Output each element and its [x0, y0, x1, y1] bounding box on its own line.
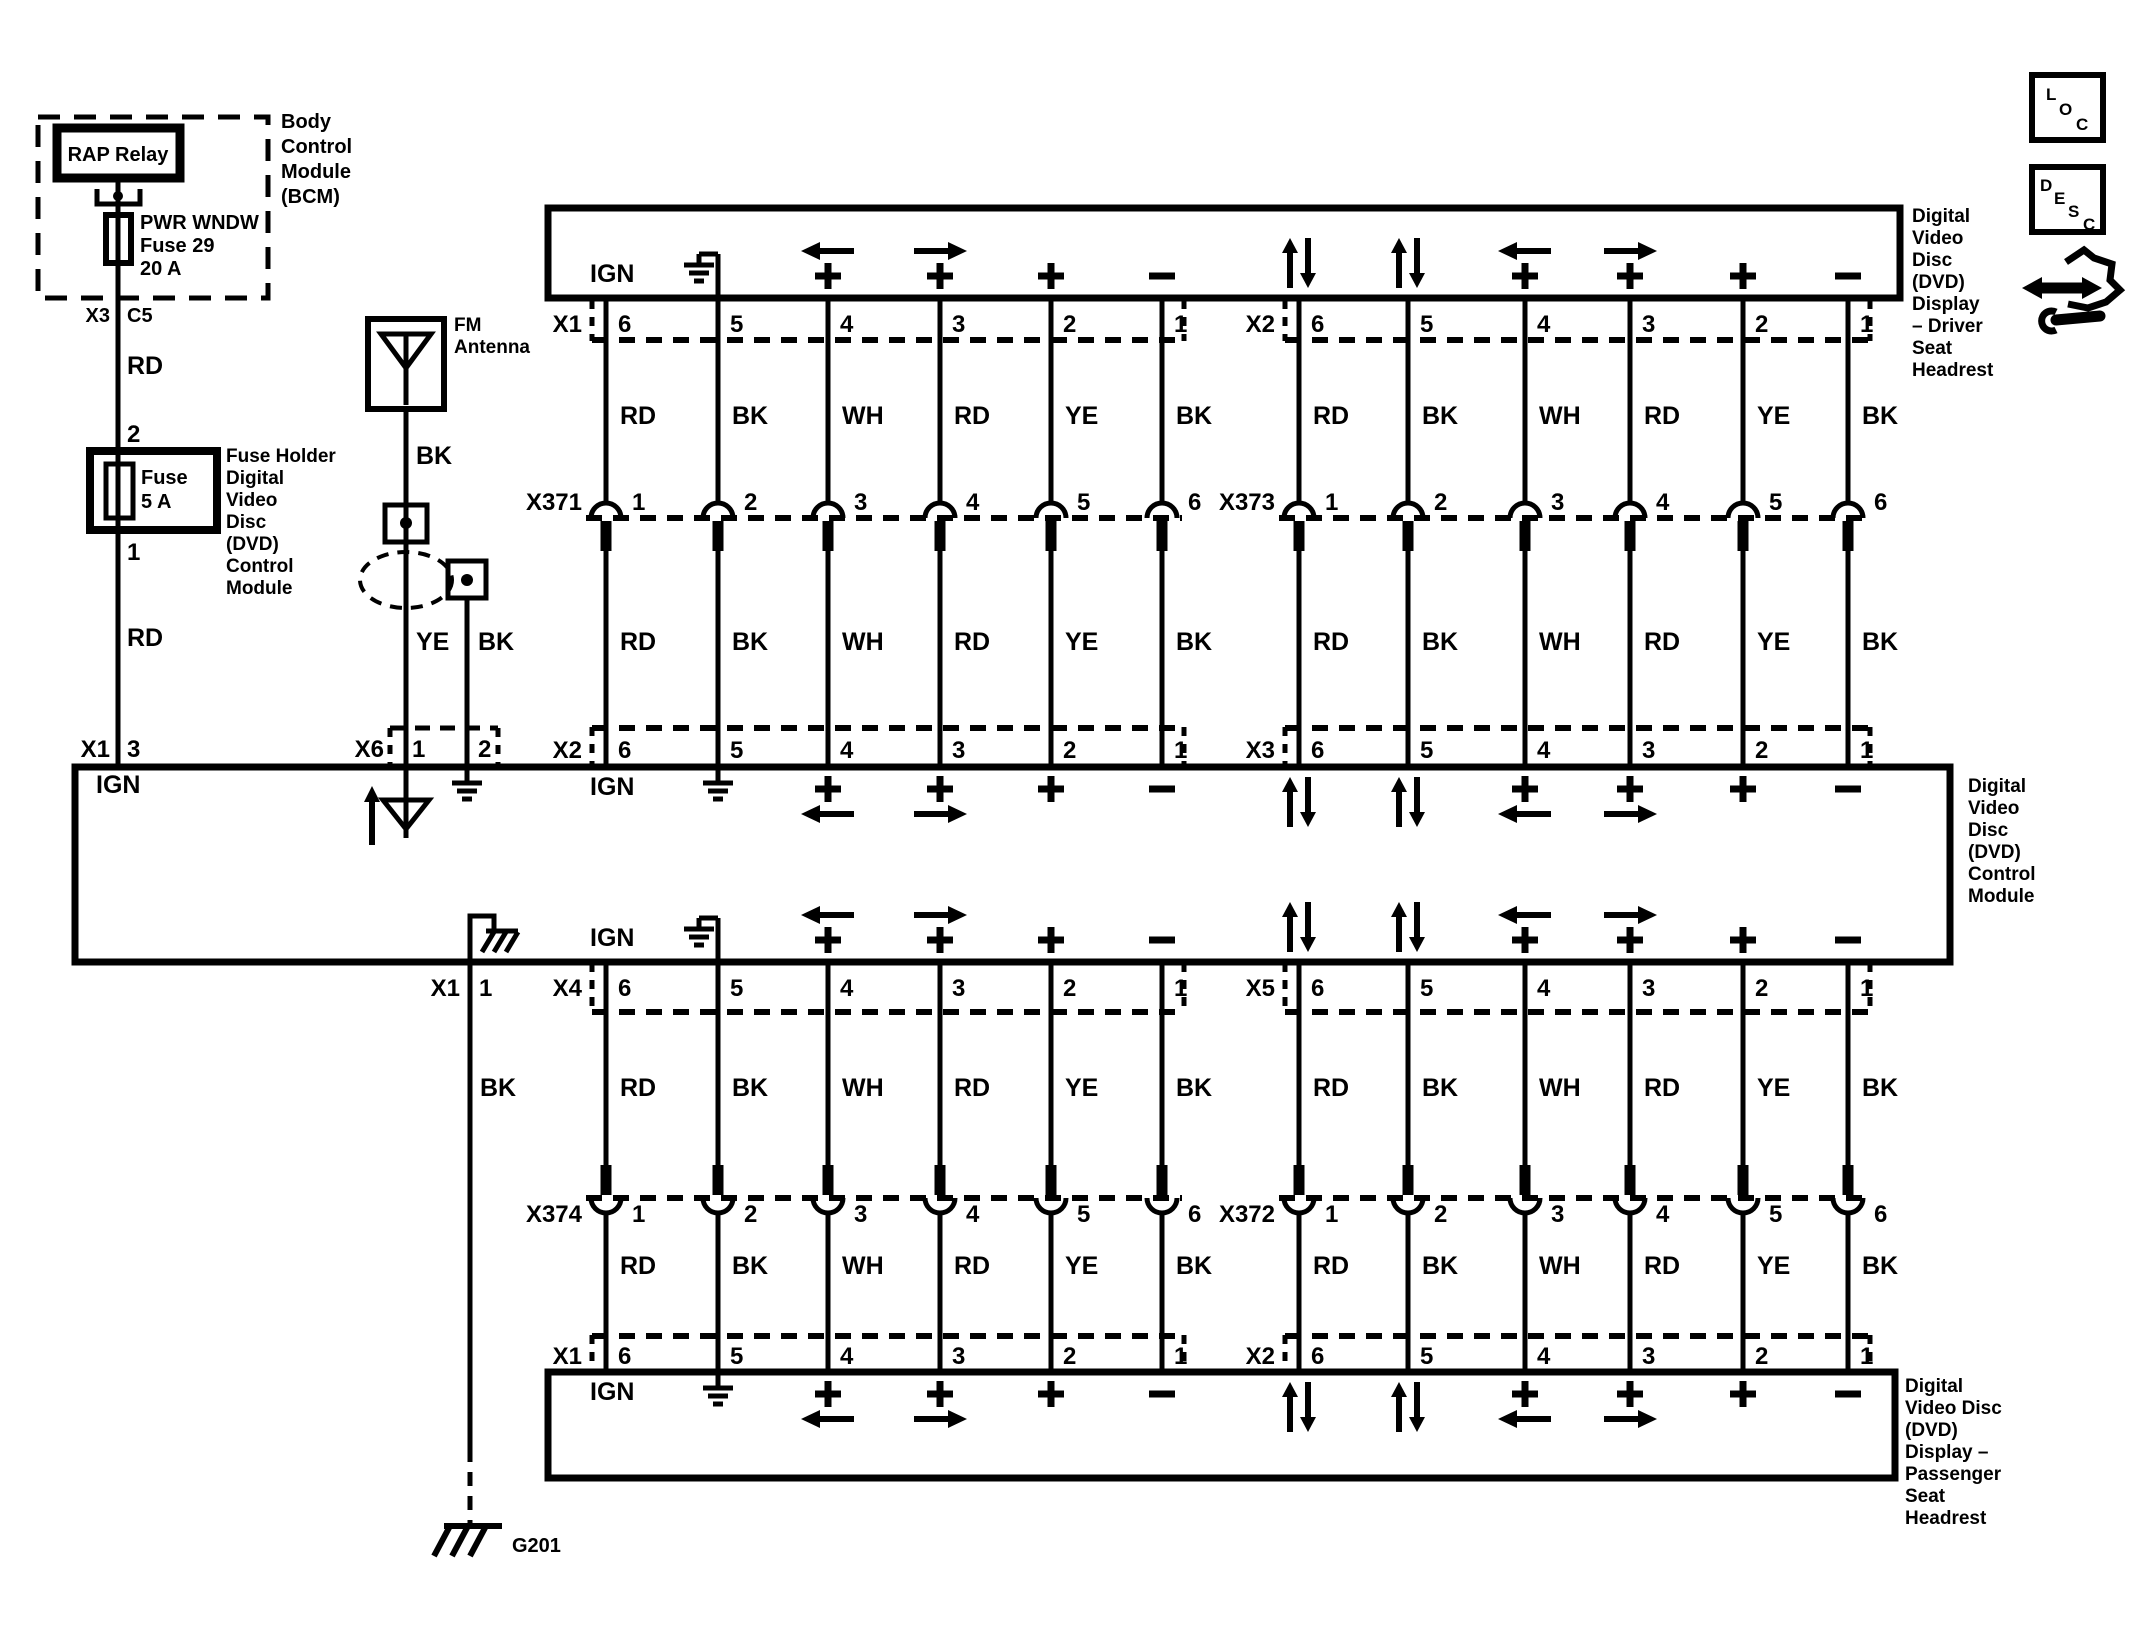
terminal-pin-icon — [1157, 1165, 1168, 1195]
pin-number: 3 — [952, 1343, 965, 1370]
wire-color: WH — [842, 402, 884, 430]
terminal-pin-icon — [1403, 1165, 1414, 1195]
pin-number: 1 — [1325, 1201, 1338, 1228]
pin-number: 2 — [1063, 311, 1076, 338]
wire-color: BK — [732, 1252, 768, 1280]
wire-color: BK — [1176, 1074, 1212, 1102]
desc-button-label: D — [2040, 176, 2052, 195]
pin-number: 6 — [1874, 489, 1887, 516]
terminal-pin-icon — [601, 521, 612, 551]
pin-number: 6 — [1311, 1343, 1324, 1370]
pin-number: 1 — [1174, 311, 1187, 338]
connector-label: X2 — [1246, 311, 1275, 338]
arrow-left-icon — [801, 805, 820, 823]
terminal-pin-icon — [1625, 521, 1636, 551]
desc-button-label: C — [2083, 215, 2095, 234]
pin-number: 6 — [618, 737, 631, 764]
desc-button-label: E — [2054, 189, 2065, 208]
wire-color: WH — [842, 628, 884, 656]
splice-dot — [461, 574, 473, 586]
g201-ground-icon — [452, 1526, 468, 1556]
module-label: (DVD) — [1968, 842, 2021, 863]
driver-display-label: – Driver — [1912, 316, 1983, 337]
module-label: Disc — [1968, 820, 2009, 841]
corner-icons: L O C D E S C — [2022, 75, 2120, 331]
pin-number: 5 — [730, 311, 743, 338]
bcm-label: Module — [281, 161, 351, 183]
fuse-holder-label: Digital — [226, 468, 284, 489]
terminal-pin-icon — [1046, 521, 1057, 551]
pin-number: 4 — [840, 1343, 854, 1370]
connector-label: X1 — [431, 975, 460, 1002]
terminal-pin-icon — [601, 1165, 612, 1195]
pin-number: 3 — [952, 975, 965, 1002]
pin-number: 5 — [1420, 1343, 1433, 1370]
passenger-display-label: (DVD) — [1905, 1420, 1958, 1441]
g201-ground-icon — [434, 1526, 450, 1556]
pin-number: 2 — [744, 489, 757, 516]
arrow-right-icon — [948, 242, 967, 260]
wire-color: BK — [1862, 628, 1898, 656]
passenger-display-label: Passenger — [1905, 1464, 2002, 1485]
connector-label: X2 — [1246, 1343, 1275, 1370]
pin-number: 3 — [1551, 1201, 1564, 1228]
wire-color: BK — [1422, 628, 1458, 656]
pin-number: 2 — [744, 1201, 757, 1228]
fuse-holder-label: Disc — [226, 512, 267, 533]
pin-number: 2 — [1434, 489, 1447, 516]
terminal-pin-icon — [823, 1165, 834, 1195]
pin-number: 6 — [1311, 737, 1324, 764]
inline-connector-label: X372 — [1219, 1201, 1275, 1228]
pin-number: 4 — [1656, 489, 1670, 516]
wire-color: BK — [1862, 1252, 1898, 1280]
antenna-group: FM Antenna BK YE BK — [360, 315, 530, 767]
pin-number: 4 — [840, 737, 854, 764]
pin-number: 3 — [854, 1201, 867, 1228]
pin-number: 6 — [1311, 311, 1324, 338]
wire-color: RD — [127, 624, 163, 652]
terminal-pin-icon — [823, 521, 834, 551]
arrow-up-icon — [364, 786, 380, 802]
control-module-box — [75, 767, 1950, 962]
pin-number: 4 — [966, 1201, 980, 1228]
arrow-down-icon — [1409, 1417, 1425, 1432]
arrow-up-icon — [1282, 238, 1298, 253]
arrow-right-icon — [1638, 1410, 1657, 1428]
pin-number: 6 — [618, 975, 631, 1002]
terminal-pin-icon — [1843, 521, 1854, 551]
pin-number: 4 — [840, 975, 854, 1002]
pin-number: 3 — [1642, 975, 1655, 1002]
terminal-pin-icon — [713, 521, 724, 551]
pin-number: 5 — [1077, 489, 1090, 516]
wire-color: RD — [1644, 402, 1680, 430]
wire-color: RD — [620, 628, 656, 656]
arrow-right-icon — [1638, 805, 1657, 823]
pin-number: 1 — [632, 1201, 645, 1228]
pin-number: 5 — [1420, 737, 1433, 764]
bcm-label: Body — [281, 111, 332, 133]
wire-color: RD — [1644, 1252, 1680, 1280]
wiring-diagram: RAP Relay PWR WNDW Fuse 29 20 A Body Con… — [0, 0, 2148, 1625]
pin-number: 2 — [127, 421, 140, 448]
antenna-label: FM — [454, 315, 481, 336]
pin-number: 4 — [1537, 975, 1551, 1002]
arrow-left-icon — [1498, 242, 1517, 260]
pin-number: 4 — [966, 489, 980, 516]
terminal-pin-icon — [1520, 1165, 1531, 1195]
wire-color: BK — [1422, 402, 1458, 430]
terminal-pin-icon — [1157, 521, 1168, 551]
arrow-left-icon — [1498, 1410, 1517, 1428]
pin-number: 1 — [1860, 737, 1873, 764]
wire-color: YE — [1757, 402, 1790, 430]
wire-color: BK — [1176, 402, 1212, 430]
chassis-ground-icon — [494, 932, 506, 952]
wire-color: YE — [1757, 1252, 1790, 1280]
pin-number: 2 — [1755, 311, 1768, 338]
pin-number: 2 — [1063, 1343, 1076, 1370]
wire-color: YE — [416, 628, 449, 656]
pin-number: 6 — [1874, 1201, 1887, 1228]
fuse29-label: PWR WNDW — [140, 212, 259, 234]
module-label: Digital — [1968, 776, 2026, 797]
pin-number: 3 — [1642, 737, 1655, 764]
wire-color: WH — [1539, 628, 1581, 656]
wire-color: YE — [1065, 1252, 1098, 1280]
connector-label: X1 — [553, 311, 582, 338]
wire-color: RD — [620, 402, 656, 430]
driver-display-label: Digital — [1912, 206, 1970, 227]
connector-label: X5 — [1246, 975, 1275, 1002]
harness-banks: X1654321RDBKWHRDYEBKX371123456RDBKWHRDYE… — [526, 238, 1898, 1432]
fuse29-label: 20 A — [140, 258, 182, 280]
wire-color: BK — [1862, 1074, 1898, 1102]
ign-label: IGN — [590, 773, 634, 801]
wire-color: BK — [732, 628, 768, 656]
wrench-icon — [2056, 316, 2100, 320]
wire-color: BK — [732, 1074, 768, 1102]
antenna-label: Antenna — [454, 337, 530, 358]
connector-label: X6 — [355, 736, 384, 763]
pin-number: 5 — [1420, 311, 1433, 338]
arrow-down-icon — [1300, 812, 1316, 827]
driver-display-group: Digital Video Disc (DVD) Display – Drive… — [548, 206, 1994, 381]
jump-arrows-icon[interactable] — [2022, 250, 2120, 331]
passenger-display-label: Digital — [1905, 1376, 1963, 1397]
fuse-holder-label: Video — [226, 490, 277, 511]
pin-number: 1 — [127, 539, 140, 566]
pin-number: 6 — [618, 1343, 631, 1370]
ign-label: IGN — [590, 1378, 634, 1406]
terminal-pin-icon — [1738, 521, 1749, 551]
pin-number: 5 — [1420, 975, 1433, 1002]
arrow-right-icon — [1638, 242, 1657, 260]
fuse29-label: Fuse 29 — [140, 235, 214, 257]
arrow-down-icon — [1300, 937, 1316, 952]
pin-number: 3 — [1642, 311, 1655, 338]
pin-number: 3 — [952, 737, 965, 764]
terminal-pin-icon — [1403, 521, 1414, 551]
fuse-holder-label: Fuse Holder — [226, 446, 336, 467]
chassis-ground-icon — [506, 932, 518, 952]
wire-color: BK — [1176, 1252, 1212, 1280]
driver-display-label: Display — [1912, 294, 1980, 315]
wire-color: BK — [480, 1074, 516, 1102]
arrow-left-icon — [801, 242, 820, 260]
arrow-up-icon — [1391, 777, 1407, 792]
rap-relay-label: RAP Relay — [68, 144, 170, 166]
fuse-holder-group: Fuse 5 A Fuse Holder Digital Video Disc … — [90, 446, 336, 652]
wire-color: WH — [1539, 1074, 1581, 1102]
pin-number: 6 — [618, 311, 631, 338]
pin-number: 3 — [1551, 489, 1564, 516]
fuse5a-label: 5 A — [141, 491, 171, 513]
module-label: Module — [1968, 886, 2035, 907]
desc-button-label: S — [2068, 202, 2079, 221]
cavity-label: C5 — [127, 305, 153, 327]
arrow-right-icon — [948, 1410, 967, 1428]
pin-number: 1 — [1174, 975, 1187, 1002]
bcm-label: (BCM) — [281, 186, 340, 208]
connector-label: X4 — [553, 975, 583, 1002]
wire-color: BK — [1422, 1074, 1458, 1102]
loc-button-label: O — [2059, 100, 2072, 119]
arrow-right-icon — [948, 805, 967, 823]
arrow-right-icon — [1638, 906, 1657, 924]
wire-color: YE — [1065, 1074, 1098, 1102]
pin-number: 3 — [952, 311, 965, 338]
wire-color: RD — [1313, 628, 1349, 656]
terminal-pin-icon — [935, 521, 946, 551]
arrow-down-icon — [1409, 812, 1425, 827]
arrow-down-icon — [1300, 273, 1316, 288]
driver-display-label: (DVD) — [1912, 272, 1965, 293]
arrow-up-icon — [1391, 1382, 1407, 1397]
wire-color: RD — [954, 628, 990, 656]
arrow-up-icon — [1282, 902, 1298, 917]
connector-label: X3 — [1246, 737, 1275, 764]
wire-color: RD — [1313, 1074, 1349, 1102]
driver-display-label: Video — [1912, 228, 1963, 249]
terminal-pin-icon — [1294, 1165, 1305, 1195]
arrow-left-icon — [1498, 906, 1517, 924]
pin-number: 1 — [1174, 1343, 1187, 1370]
pin-number: 5 — [730, 737, 743, 764]
wire-color: WH — [842, 1252, 884, 1280]
wire-color: RD — [1313, 1252, 1349, 1280]
wire-color: YE — [1065, 402, 1098, 430]
wire-color: YE — [1757, 1074, 1790, 1102]
pin-number: 2 — [1755, 737, 1768, 764]
passenger-display-label: Seat — [1905, 1486, 1946, 1507]
fuse-holder-label: (DVD) — [226, 534, 279, 555]
pin-number: 2 — [1063, 737, 1076, 764]
pin-number: 2 — [1063, 975, 1076, 1002]
pin-number: 1 — [1860, 1343, 1873, 1370]
inline-connector-label: X374 — [526, 1201, 583, 1228]
inline-connector-label: X373 — [1219, 489, 1275, 516]
loc-button-label: C — [2076, 115, 2088, 134]
passenger-display-box — [548, 1372, 1895, 1478]
pin-number: 1 — [412, 736, 425, 763]
pin-number: 5 — [1769, 489, 1782, 516]
wire-color: RD — [954, 1074, 990, 1102]
wire-color: RD — [1644, 1074, 1680, 1102]
arrow-up-icon — [1391, 238, 1407, 253]
terminal-pin-icon — [1520, 521, 1531, 551]
connector-label: X2 — [553, 737, 582, 764]
driver-display-label: Seat — [1912, 338, 1953, 359]
bcm-label: Control — [281, 136, 352, 158]
loc-button-label: L — [2046, 85, 2056, 104]
inline-connector-label: X371 — [526, 489, 582, 516]
pin-number: 2 — [478, 736, 491, 763]
passenger-display-label: Headrest — [1905, 1508, 1987, 1529]
pin-number: 3 — [854, 489, 867, 516]
wire-color: BK — [1422, 1252, 1458, 1280]
pin-number: 5 — [730, 975, 743, 1002]
terminal-pin-icon — [1625, 1165, 1636, 1195]
arrow-down-icon — [1300, 1417, 1316, 1432]
fuse-holder-label: Module — [226, 578, 293, 599]
arrow-right-icon — [948, 906, 967, 924]
pin-number: 6 — [1188, 489, 1201, 516]
wire-color: YE — [1065, 628, 1098, 656]
arrow-left-icon — [1498, 805, 1517, 823]
arrow-up-icon — [1282, 1382, 1298, 1397]
connector-label: X1 — [81, 736, 110, 763]
wire-color: RD — [1644, 628, 1680, 656]
module-label: Control — [1968, 864, 2036, 885]
terminal-pin-icon — [1294, 521, 1305, 551]
driver-display-label: Headrest — [1912, 360, 1994, 381]
pin-number: 6 — [1311, 975, 1324, 1002]
pin-number: 4 — [1656, 1201, 1670, 1228]
pin-number: 1 — [1860, 311, 1873, 338]
ign-label: IGN — [590, 924, 634, 952]
wire-color: RD — [954, 1252, 990, 1280]
connector-label: X3 — [86, 305, 110, 327]
pin-number: 1 — [632, 489, 645, 516]
pin-number: 5 — [1769, 1201, 1782, 1228]
bcm-group: RAP Relay PWR WNDW Fuse 29 20 A Body Con… — [38, 111, 352, 767]
wire-color: YE — [1757, 628, 1790, 656]
arrow-left-icon — [801, 906, 820, 924]
terminal-pin-icon — [713, 1165, 724, 1195]
wire-color: RD — [954, 402, 990, 430]
terminal-pin-icon — [1046, 1165, 1057, 1195]
wire-color: RD — [127, 352, 163, 380]
wire-color: BK — [1862, 402, 1898, 430]
pin-number: 6 — [1188, 1201, 1201, 1228]
pin-number: 1 — [1325, 489, 1338, 516]
wire-color: BK — [732, 402, 768, 430]
pin-number: 4 — [840, 311, 854, 338]
arrow-down-icon — [1409, 937, 1425, 952]
chassis-ground-icon — [482, 932, 494, 952]
pin-number: 4 — [1537, 1343, 1551, 1370]
connector-label: X1 — [553, 1343, 582, 1370]
pin-number: 1 — [1860, 975, 1873, 1002]
module-label: Video — [1968, 798, 2019, 819]
terminal-pin-icon — [935, 1165, 946, 1195]
driver-display-box — [548, 208, 1900, 298]
pin-number: 1 — [479, 975, 492, 1002]
wire-color: RD — [620, 1074, 656, 1102]
pin-number: 5 — [1077, 1201, 1090, 1228]
wire-color: BK — [478, 628, 514, 656]
fuse-holder-label: Control — [226, 556, 294, 577]
pin-number: 3 — [127, 736, 140, 763]
wire-color: WH — [1539, 1252, 1581, 1280]
ign-label: IGN — [96, 771, 140, 799]
passenger-display-label: Display – — [1905, 1442, 1988, 1463]
g201-ground-icon — [470, 1526, 486, 1556]
splice-dot — [400, 517, 412, 529]
driver-display-label: Disc — [1912, 250, 1953, 271]
arrow-up-icon — [1282, 777, 1298, 792]
terminal-pin-icon — [1738, 1165, 1749, 1195]
pin-number: 2 — [1434, 1201, 1447, 1228]
wire-color: BK — [1176, 628, 1212, 656]
arrow-left-icon — [801, 1410, 820, 1428]
arrow-up-icon — [1391, 902, 1407, 917]
arrow-down-icon — [1409, 273, 1425, 288]
ign-label: IGN — [590, 260, 634, 288]
pin-number: 4 — [1537, 737, 1551, 764]
pin-number: 4 — [1537, 311, 1551, 338]
terminal-pin-icon — [1843, 1165, 1854, 1195]
pin-number: 2 — [1755, 1343, 1768, 1370]
wire-color: WH — [842, 1074, 884, 1102]
ground-id-label: G201 — [512, 1535, 561, 1557]
fuse5a-label: Fuse — [141, 467, 188, 489]
pin-number: 1 — [1174, 737, 1187, 764]
pin-number: 5 — [730, 1343, 743, 1370]
wire-color: WH — [1539, 402, 1581, 430]
wire-color: RD — [1313, 402, 1349, 430]
passenger-display-label: Video Disc — [1905, 1398, 2002, 1419]
pin-number: 2 — [1755, 975, 1768, 1002]
wire-color: BK — [416, 442, 452, 470]
pin-number: 3 — [1642, 1343, 1655, 1370]
wire-color: RD — [620, 1252, 656, 1280]
passenger-display-group: Digital Video Disc (DVD) Display – Passe… — [548, 1372, 2002, 1529]
